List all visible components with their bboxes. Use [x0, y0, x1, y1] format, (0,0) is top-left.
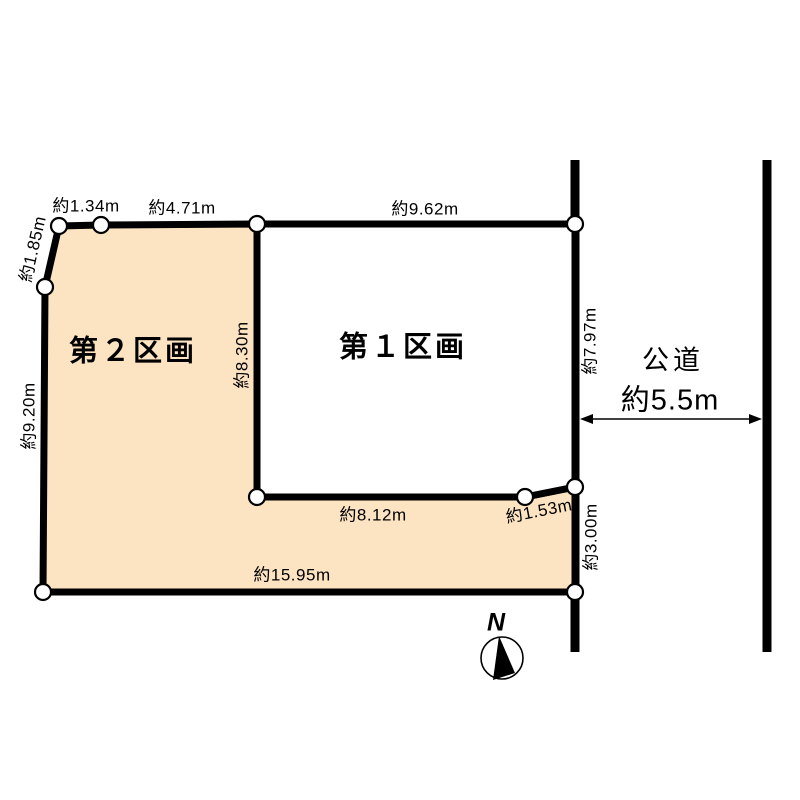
land-plot-diagram: 約1.34m 約4.71m 約9.62m 約1.85m 約9.20m 約8.30…: [0, 0, 800, 800]
dimension-label-south-side: 約15.95m: [253, 567, 330, 584]
vertex-marker: [37, 279, 53, 295]
vertex-marker: [567, 479, 583, 495]
vertex-marker: [51, 218, 67, 234]
dimension-label-inner-border: 約8.30m: [234, 321, 251, 388]
vertex-marker: [249, 489, 265, 505]
parcel-2-label: 第２区画: [69, 338, 197, 367]
vertex-marker: [567, 584, 583, 600]
dimension-label-notch-bottom: 約8.12m: [339, 507, 406, 524]
dimension-label-top-parcel2: 約4.71m: [148, 200, 215, 217]
compass-north-label: N: [487, 611, 505, 636]
dimension-label-east-road-frontage: 約7.97m: [582, 307, 599, 374]
dimension-label-top-parcel1: 約9.62m: [391, 201, 458, 218]
vertex-marker: [93, 217, 109, 233]
dimension-label-east-parcel2: 約3.00m: [583, 503, 600, 570]
vertex-marker: [249, 216, 265, 232]
dimension-label-west-side: 約9.20m: [21, 382, 38, 449]
road-name-label: 公道: [642, 348, 704, 375]
dimension-label-top-left-short: 約1.34m: [52, 198, 119, 215]
vertex-marker: [567, 216, 583, 232]
parcel-1-label: 第１区画: [339, 334, 467, 363]
vertex-marker: [35, 584, 51, 600]
compass-rose: [481, 636, 523, 680]
road-width-label: 約5.5m: [621, 387, 719, 416]
